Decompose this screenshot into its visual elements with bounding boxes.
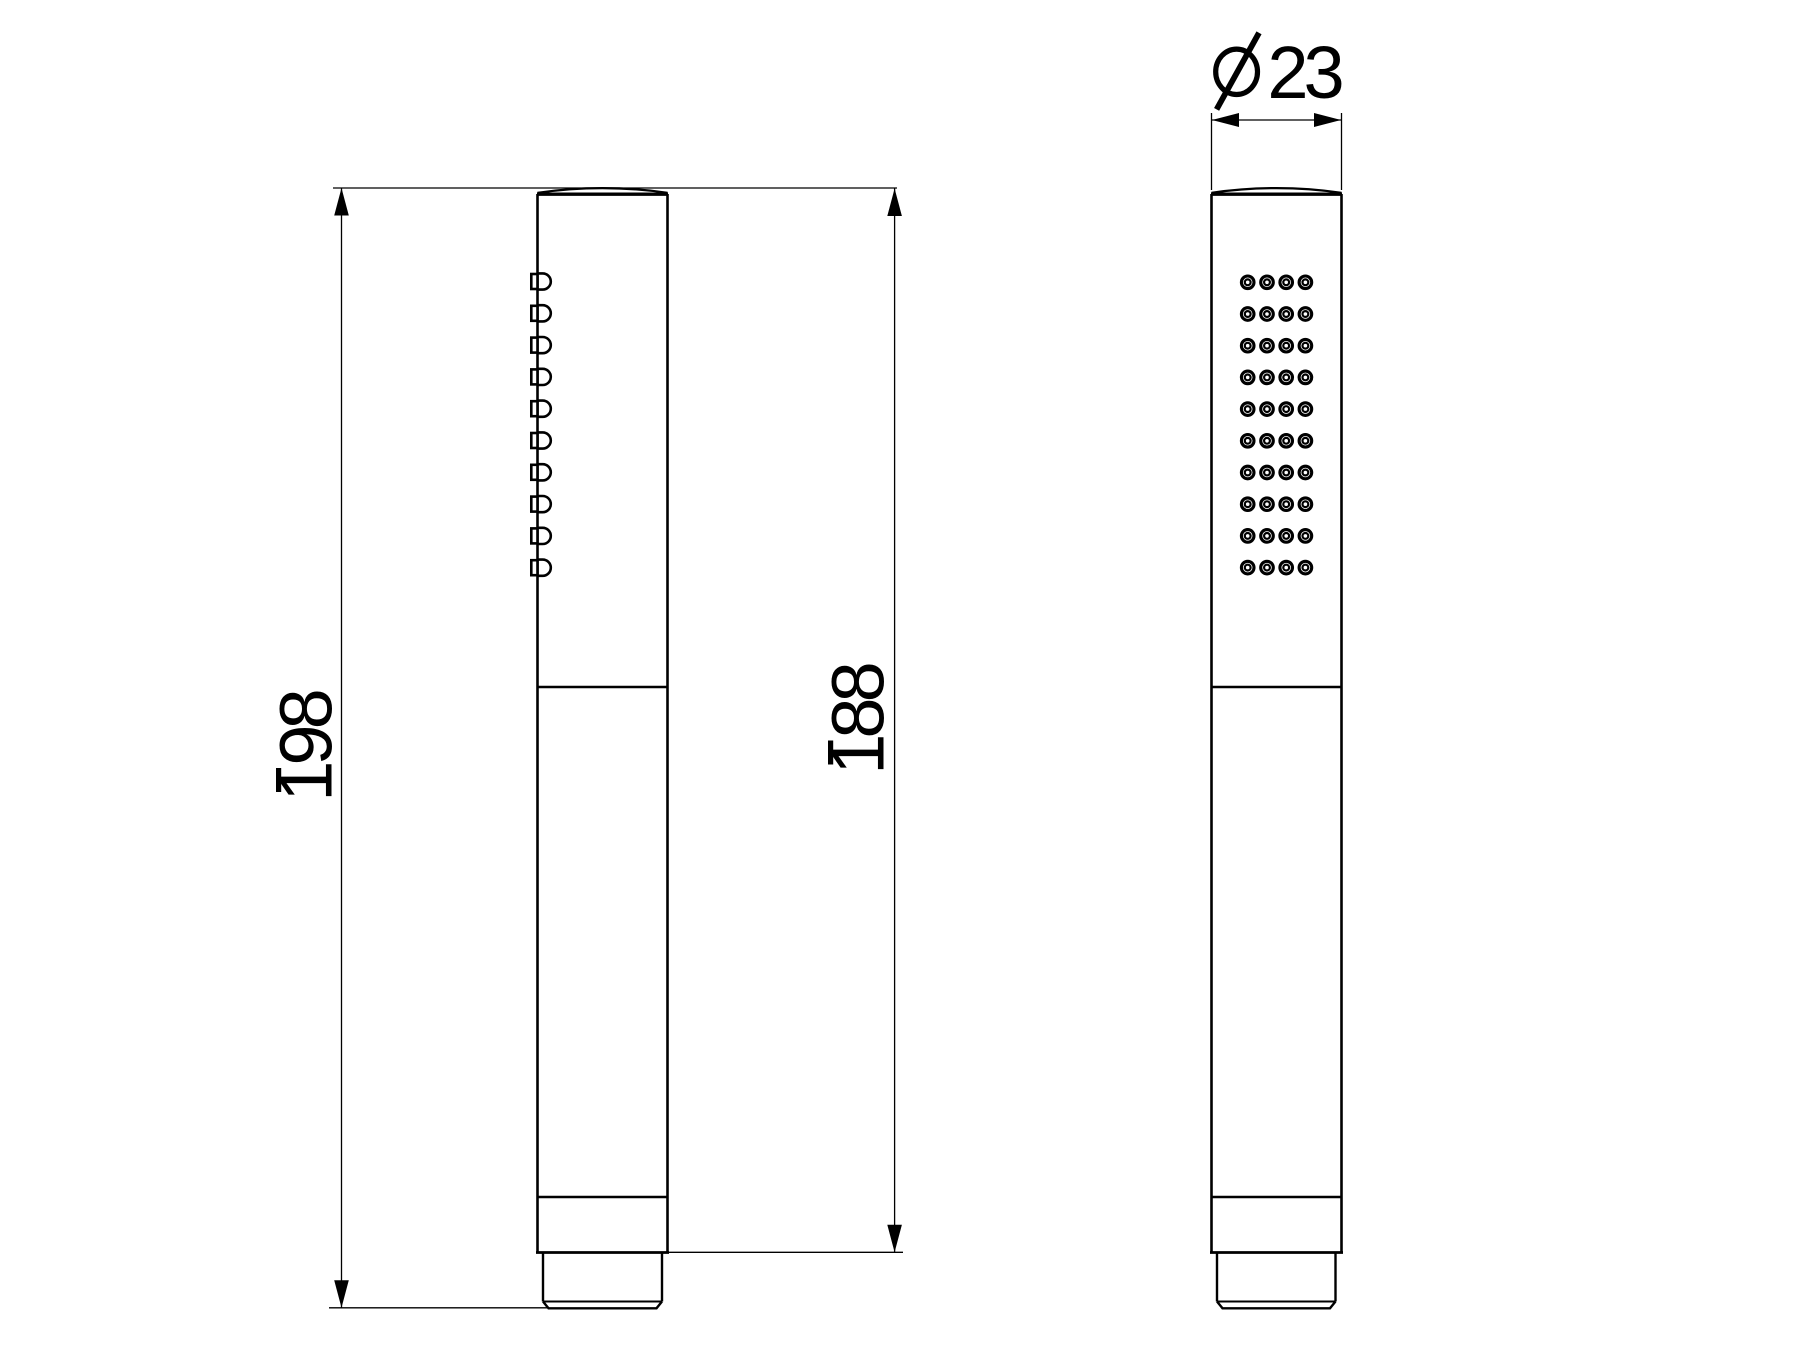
- svg-text:23: 23: [1267, 31, 1341, 114]
